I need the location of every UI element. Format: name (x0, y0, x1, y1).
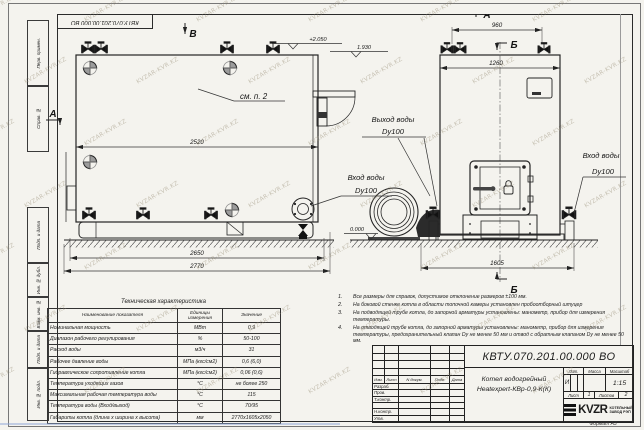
brand-name: KVZR (578, 404, 607, 416)
table-row: Габариты котла (длина х ширина х высота)… (48, 412, 281, 423)
valve-icon (221, 42, 234, 53)
callout-labels: см. п. 2 Выход воды Dy100 Вход воды Dy10… (198, 89, 626, 213)
tech-cell-value: 50-100 (223, 334, 281, 345)
mass-center-mark (224, 202, 240, 218)
margin-label: Инв. № подл. (36, 380, 41, 409)
margin-box-vzam-inv: Взам. инв. № (27, 296, 49, 332)
elevation-zero: 0.000 (350, 227, 365, 233)
tech-col-header: Значение (223, 309, 281, 323)
list-item: 1.Все размеры для справок, допустимое от… (338, 294, 631, 301)
tech-table-wrap: Техническая характеристика Наименование … (47, 299, 280, 424)
section-mark-v: В (189, 29, 196, 40)
notes-list: 1.Все размеры для справок, допустимое от… (338, 294, 631, 346)
change-header-row: Изм. Лист N докум. Подп. Дата (373, 376, 465, 384)
col-header-izm: Изм. (373, 376, 385, 384)
tech-cell-name: Температура воды (Вход/выход) (48, 401, 178, 412)
inlet-label-right: Вход воды Dy100 (574, 151, 626, 213)
tech-cell-value: 2770х1605х2050 (223, 412, 281, 423)
tech-cell-unit: °С (178, 390, 223, 401)
tech-cell-unit: мм (178, 412, 223, 423)
tech-cell-value: 0,06 (0,6) (223, 367, 281, 378)
door-handle (473, 187, 493, 191)
format-label: Формат (589, 421, 609, 427)
sig-label-utv: Утв. (373, 416, 399, 422)
mass-value (584, 375, 606, 392)
title-block: Изм. Лист N докум. Подп. Дата Разраб. Пр… (372, 345, 634, 423)
drawing-sheet: Перв. примен. Справ. № Подп. и дата Инв.… (0, 0, 644, 430)
tech-cell-name: Номинальная мощность (48, 323, 178, 334)
valve-icon (441, 43, 453, 53)
table-row: Номинальная мощностьМВт0,9 (48, 323, 281, 334)
section-mark-a-left: А (48, 109, 56, 120)
scale-value: 1:15 (606, 375, 633, 392)
tech-cell-value: 115 (223, 390, 281, 401)
tech-cell-unit: % (178, 334, 223, 345)
tech-cell-unit: °С (178, 378, 223, 389)
col-header-data: Дата (450, 376, 465, 384)
mass-label: Масса (584, 368, 606, 375)
section-mark-b-top: Б (510, 40, 517, 51)
svg-text:Вход воды: Вход воды (583, 151, 620, 160)
tech-cell-name: Максимальная рабочая температура воды (48, 390, 178, 401)
company-logo: KVZR КОТЕЛЬНЫЙ ЗАВОД РЭП (564, 399, 633, 421)
signature-rows: Разраб. Пров. Т.контр. Н.контр. Утв. (373, 384, 465, 422)
product-name-line2: Heatexpert-КВр-0,9-К(К) (477, 386, 551, 393)
valve-icon (137, 208, 150, 219)
dim-1260: 1260 (489, 60, 503, 67)
note-number: 3. (338, 310, 353, 324)
title-block-doc-number: КВТУ.070.201.00.000 ВО (465, 346, 633, 368)
lock-icon (504, 181, 513, 194)
table-row: Температура уходящих газов°Сне более 250 (48, 378, 281, 389)
drawing-canvas: 2520 2650 2770 960 1260 1605 +2.050 1.93… (44, 14, 640, 295)
scan-artifact-line (0, 423, 340, 425)
sheet-label: Лист (564, 392, 584, 399)
valve-icon (205, 208, 218, 219)
dim-2770: 2770 (189, 263, 204, 270)
tech-header-row: Наименование показателя Единицы измерени… (48, 309, 281, 323)
see-note-ref: см. п. 2 (240, 92, 268, 101)
valve-icon (454, 43, 466, 53)
table-row: Расход водым3/ч31 (48, 345, 281, 356)
dim-2650: 2650 (189, 250, 204, 257)
title-block-right: Лит. Масса Масштаб И 1:15 Лист 1 Листов … (564, 368, 633, 422)
tech-cell-name: Расход воды (48, 345, 178, 356)
tech-table-title: Техническая характеристика (47, 299, 280, 308)
scale-label: Масштаб (606, 368, 633, 375)
list-item: 3.На подводящей трубе котла, до запорной… (338, 310, 631, 324)
margin-box-podp-data-2: Подп. и дата (27, 330, 49, 369)
tech-cell-unit: МПа (кгс/см2) (178, 356, 223, 367)
format-label-wrap: Формат А3 (568, 421, 638, 427)
note-text: На подводящей трубе котла, до запорной а… (353, 310, 631, 324)
tech-cell-value: 31 (223, 345, 281, 356)
tech-cell-name: Габариты котла (длина х ширина х высота) (48, 412, 178, 423)
note-text: На отводящей трубе котла, до запорной ар… (353, 325, 631, 346)
dim-1605: 1605 (490, 260, 504, 267)
tech-table: Наименование показателя Единицы измерени… (47, 308, 281, 424)
ground-hatch (64, 240, 598, 248)
format-value: А3 (611, 421, 617, 427)
dimensions: 2520 2650 2770 960 1260 1605 (64, 22, 574, 274)
sheets-label: Листов (595, 392, 619, 399)
dim-2520: 2520 (189, 139, 204, 146)
margin-label: Подп. и дата (36, 221, 41, 250)
tech-cell-name: Температура уходящих газов (48, 378, 178, 389)
dim-960: 960 (492, 22, 503, 29)
valve-icon (538, 43, 550, 53)
valve-icon (82, 42, 95, 53)
tech-cell-unit: °С (178, 401, 223, 412)
tech-cell-value: 70/95 (223, 401, 281, 412)
table-row: Рабочее давление водыМПа (кгс/см2)0,6 (6… (48, 356, 281, 367)
valve-icon (83, 208, 96, 219)
mass-center-mark (222, 60, 238, 76)
tech-cell-name: Гидравлическое сопротивление котла (48, 367, 178, 378)
svg-text:Dy100: Dy100 (355, 186, 378, 195)
col-header-ndok: N докум. (399, 376, 431, 384)
sheets-value: 2 (619, 392, 633, 399)
change-record-grid (373, 346, 465, 376)
tech-cell-name: Диапазон рабочего регулирования (48, 334, 178, 345)
table-row: Диапазон рабочего регулирования%50-100 (48, 334, 281, 345)
lit-label: Лит. (564, 368, 584, 375)
tech-cell-value: 0,6 (6,0) (223, 356, 281, 367)
mass-center-mark (82, 60, 98, 76)
tech-cell-value: 0,9 (223, 323, 281, 334)
list-item: 4.На отводящей трубе котла, до запорной … (338, 325, 631, 346)
furnace-door (470, 161, 533, 215)
inlet-label-left: Вход воды Dy100 (311, 173, 392, 206)
mass-center-mark (82, 154, 98, 170)
tech-cell-name: Рабочее давление воды (48, 356, 178, 367)
product-name-line1: Котел водогрейный (482, 376, 547, 383)
side-valve-right (560, 207, 576, 240)
margin-label: Взам. инв. № (36, 300, 41, 328)
table-row: Максимальная рабочая температура воды°С1… (48, 390, 281, 401)
col-header-list: Лист (385, 376, 399, 384)
section-mark-a-top: А (482, 14, 490, 21)
note-text: Все размеры для справок, допустимое откл… (353, 294, 527, 301)
margin-label: Справ. № (36, 108, 41, 129)
svg-text:Dy100: Dy100 (382, 127, 405, 136)
tech-cell-unit: МВт (178, 323, 223, 334)
elevation-top: +2.050 (309, 37, 327, 43)
product-name-box: Котел водогрейный Heatexpert-КВр-0,9-К(К… (465, 368, 564, 422)
sheet-value: 1 (584, 392, 595, 399)
margin-label: Инв. № дубл. (36, 266, 41, 294)
tech-col-header: Единицы измерения (178, 309, 223, 323)
valve-icon (95, 42, 108, 53)
svg-text:Выход воды: Выход воды (372, 115, 415, 124)
note-text: На боковой стенке котла в области топочн… (353, 302, 582, 309)
note-number: 1. (338, 294, 353, 301)
note-number: 2. (338, 302, 353, 309)
table-row: Гидравлическое сопротивление котлаМПа (к… (48, 367, 281, 378)
elevation-mid: 1.930 (357, 45, 372, 51)
margin-label: Подп. и дата (36, 335, 41, 364)
brand-subtitle: КОТЕЛЬНЫЙ ЗАВОД РЭП (609, 406, 632, 415)
inlet-flange (292, 198, 314, 239)
svg-text:Вход воды: Вход воды (348, 173, 385, 182)
list-item: 2.На боковой стенке котла в области топо… (338, 302, 631, 309)
section-marks: В А Б Б А (46, 14, 518, 295)
tech-cell-unit: м3/ч (178, 345, 223, 356)
boiler-side-view (66, 42, 355, 239)
table-row: Температура воды (Вход/выход)°С70/95 (48, 401, 281, 412)
margin-box-inv-podl: Инв. № подл. (27, 367, 49, 421)
tech-cell-value: не более 250 (223, 378, 281, 389)
tech-cell-unit: МПа (кгс/см2) (178, 367, 223, 378)
lit-value: И (564, 375, 571, 392)
tech-col-header: Наименование показателя (48, 309, 178, 323)
note-number: 4. (338, 325, 353, 346)
outlet-elbow (313, 91, 355, 126)
kvzr-logo-icon (564, 404, 576, 416)
margin-label: Перв. примен. (36, 38, 41, 69)
svg-text:Dy100: Dy100 (592, 167, 615, 176)
col-header-podp: Подп. (431, 376, 450, 384)
